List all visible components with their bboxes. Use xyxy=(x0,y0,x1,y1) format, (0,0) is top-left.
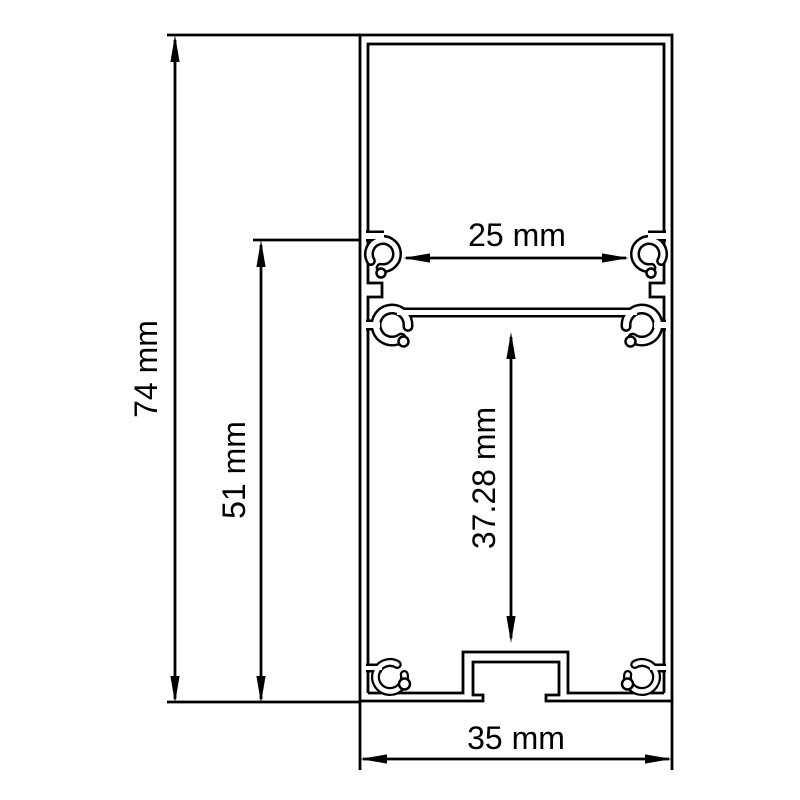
dimension-overall-height: 74 mm xyxy=(128,35,360,703)
screw-port-bottom-right-tip xyxy=(622,679,633,690)
dimension-label-overall-width: 35 mm xyxy=(467,720,565,756)
clip-hook-left-tip xyxy=(377,269,386,278)
profile-drawing-svg: 74 mm 51 mm 25 mm 37.28 mm 35 mm xyxy=(0,0,800,800)
arrowhead-down xyxy=(256,676,265,703)
arrowhead-right xyxy=(645,754,672,763)
dimension-label-opening-width: 25 mm xyxy=(468,217,566,253)
screw-port-bottom-left-tip xyxy=(399,679,410,690)
arrowhead-left xyxy=(360,754,387,763)
clip-hook-right-tip xyxy=(647,269,656,278)
profile-outer-contour xyxy=(360,35,672,701)
arrowhead-up xyxy=(170,35,179,62)
dimension-label-overall-height: 74 mm xyxy=(128,320,164,418)
screw-port-mid-left-tip xyxy=(399,337,409,347)
profile-outline xyxy=(360,35,672,701)
dimension-label-inner-cavity-height: 37.28 mm xyxy=(466,407,502,549)
dimension-upper-section-height: 51 mm xyxy=(216,240,360,703)
arrowhead-down xyxy=(170,676,179,703)
dimension-overall-width: 35 mm xyxy=(360,701,672,770)
arrowhead-up xyxy=(256,240,265,267)
dimension-label-upper-section-height: 51 mm xyxy=(216,421,252,519)
technical-drawing: 74 mm 51 mm 25 mm 37.28 mm 35 mm xyxy=(0,0,800,800)
screw-port-mid-right-tip xyxy=(626,337,636,347)
